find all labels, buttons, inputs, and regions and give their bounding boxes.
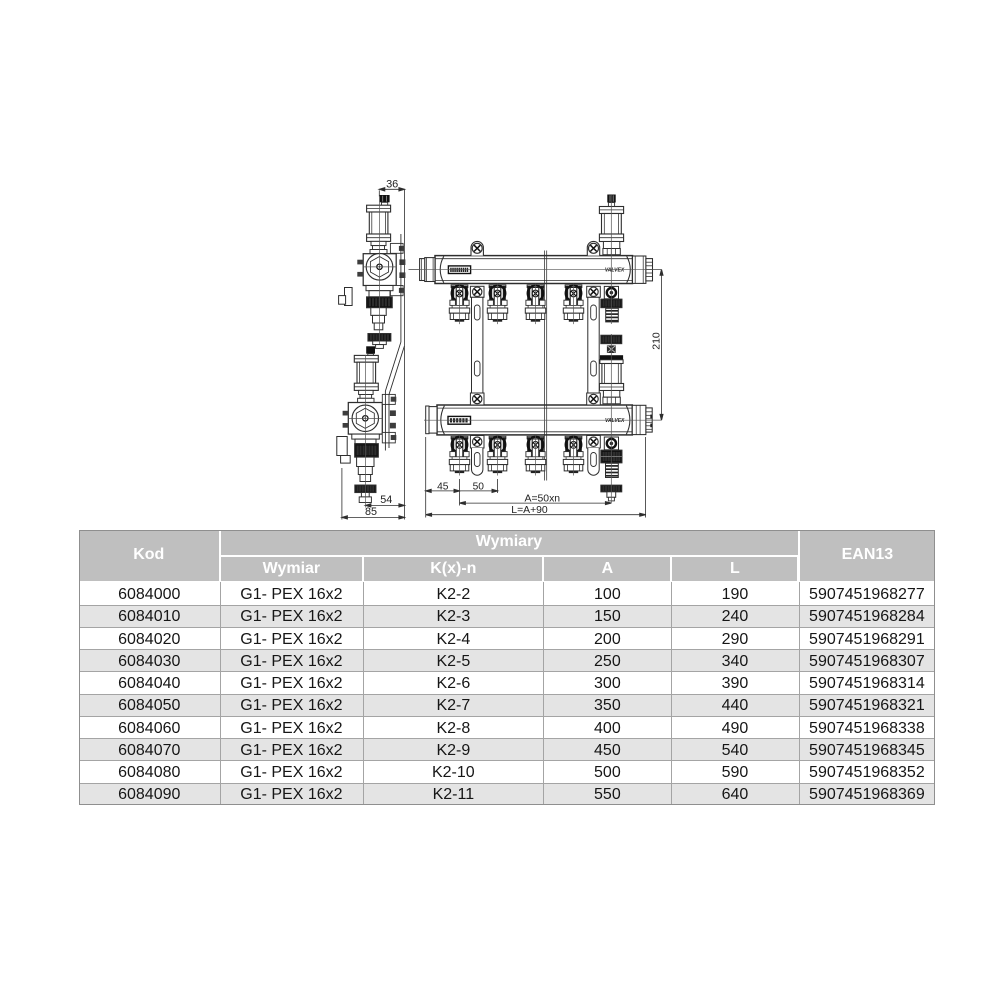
svg-text:50: 50: [473, 481, 485, 492]
svg-text:VALVEX: VALVEX: [605, 418, 625, 424]
svg-text:L=A+90: L=A+90: [511, 505, 548, 516]
svg-text:VALVEX: VALVEX: [605, 267, 625, 273]
svg-text:A=50xn: A=50xn: [525, 493, 561, 504]
svg-text:210: 210: [650, 332, 662, 350]
svg-text:54: 54: [380, 494, 392, 506]
svg-text:36: 36: [386, 179, 398, 191]
svg-text:45: 45: [437, 481, 449, 492]
svg-text:85: 85: [365, 506, 377, 518]
